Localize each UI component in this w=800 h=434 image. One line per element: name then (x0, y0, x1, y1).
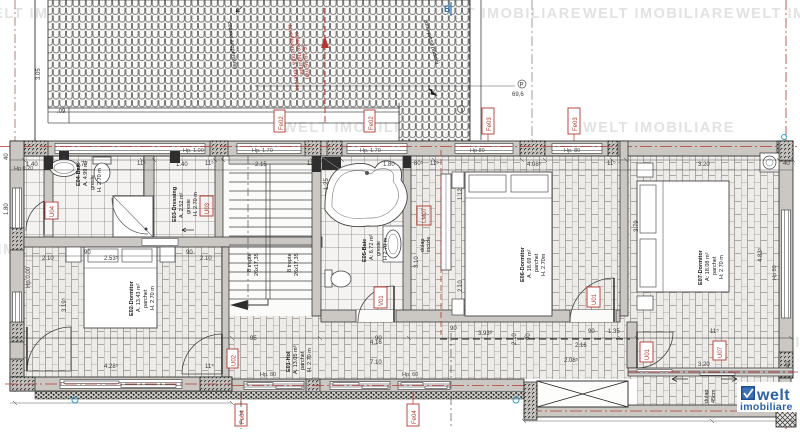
svg-text:90: 90 (588, 329, 595, 335)
svg-text:E02-Dormitor: E02-Dormitor (129, 280, 135, 316)
svg-text:8 trepte: 8 trepte (287, 253, 293, 272)
svg-text:Hp. 1.70: Hp. 1.70 (360, 148, 381, 154)
svg-text:11⁵: 11⁵ (710, 328, 719, 335)
svg-text:Fe02: Fe02 (279, 116, 285, 130)
svg-text:U03: U03 (205, 202, 211, 214)
svg-text:3.19⁵: 3.19⁵ (61, 297, 68, 312)
svg-text:Hp. 1.00: Hp. 1.00 (183, 148, 204, 154)
svg-text:gresie: gresie (186, 199, 192, 214)
svg-text:4.28⁵: 4.28⁵ (104, 363, 119, 370)
svg-text:26x17,35: 26x17,35 (254, 253, 260, 276)
svg-text:3.20: 3.20 (698, 362, 710, 368)
svg-text:1.35: 1.35 (608, 329, 620, 335)
svg-text:40: 40 (783, 161, 790, 167)
svg-text:H. 2.70 m: H. 2.70 m (193, 192, 199, 216)
svg-text:11⁵: 11⁵ (607, 160, 616, 167)
svg-text:Fe02: Fe02 (369, 116, 375, 130)
svg-text:WELT IMOBILIARE: WELT IMOBILIARE (583, 120, 735, 136)
svg-text:parchet: parchet (712, 256, 718, 275)
svg-text:A. 13.05 m²: A. 13.05 m² (293, 345, 299, 374)
svg-text:3.05: 3.05 (36, 68, 42, 80)
svg-text:incizie: incizie (426, 237, 432, 252)
svg-text:H. 2.70 m: H. 2.70 m (150, 286, 156, 310)
svg-text:90: 90 (186, 250, 193, 256)
svg-text:P: P (520, 83, 524, 89)
svg-text:H. 2.70 m: H. 2.70 m (307, 348, 313, 372)
svg-text:1.12: 1.12 (458, 188, 464, 200)
svg-text:H. 2.70m: H. 2.70m (541, 253, 547, 276)
svg-text:45cm: 45cm (711, 389, 717, 403)
svg-text:E03-Dressing: E03-Dressing (172, 187, 178, 222)
svg-text:dulap: dulap (704, 390, 710, 403)
svg-text:E01-Hol: E01-Hol (286, 351, 292, 372)
svg-text:1.80: 1.80 (4, 203, 10, 215)
svg-text:Hp. 80: Hp. 80 (260, 372, 276, 378)
svg-text:imobiliare: imobiliare (740, 401, 793, 413)
svg-text:E07-Dormitor: E07-Dormitor (698, 249, 704, 285)
svg-text:2.10: 2.10 (42, 256, 54, 262)
svg-text:40: 40 (4, 153, 10, 160)
svg-text:parchet: parchet (143, 289, 149, 308)
svg-text:A. 13.43 m²: A. 13.43 m² (136, 283, 142, 312)
svg-text:gresie: gresie (90, 175, 96, 190)
svg-text:LM07: LM07 (422, 207, 428, 223)
svg-text:U07: U07 (718, 346, 724, 358)
svg-text:2.77: 2.77 (76, 162, 88, 168)
svg-text:WELT IMOBILIARE: WELT IMOBILIARE (736, 6, 800, 22)
svg-text:90: 90 (375, 336, 382, 342)
svg-text:Fe03: Fe03 (487, 117, 493, 131)
svg-text:90: 90 (450, 326, 457, 332)
svg-text:69,6: 69,6 (512, 92, 524, 98)
svg-text:A. 18.69 m²: A. 18.69 m² (527, 249, 533, 278)
svg-text:Hp 80: Hp 80 (772, 265, 778, 280)
svg-text:Hp. 80: Hp. 80 (564, 148, 580, 154)
svg-text:8 trepte: 8 trepte (247, 253, 253, 272)
svg-text:3.93⁸: 3.93⁸ (478, 330, 493, 337)
svg-text:WELT IMOBILIARE: WELT IMOBILIARE (583, 6, 735, 22)
svg-text:A: 18.08 m²: A: 18.08 m² (705, 252, 711, 281)
svg-text:2.10: 2.10 (200, 256, 212, 262)
svg-text:E05-Baie: E05-Baie (362, 239, 368, 262)
svg-text:1.40: 1.40 (176, 162, 188, 168)
svg-text:Hp. 60: Hp. 60 (402, 372, 418, 378)
svg-text:11⁴: 11⁴ (205, 363, 214, 370)
svg-text:3.79: 3.79 (634, 220, 640, 232)
svg-text:Hp.0.00: Hp.0.00 (26, 266, 32, 288)
svg-text:E06-Dormitor: E06-Dormitor (520, 246, 526, 282)
svg-text:80⁵: 80⁵ (414, 160, 424, 167)
svg-text:Hp 80: Hp 80 (470, 148, 485, 154)
svg-text:4.83⁵: 4.83⁵ (757, 247, 764, 262)
svg-text:2.10: 2.10 (458, 280, 464, 292)
svg-text:1.40: 1.40 (26, 162, 38, 168)
svg-text:.09: .09 (57, 109, 66, 115)
svg-text:1.80: 1.80 (383, 162, 395, 168)
svg-text:U01: U01 (645, 348, 651, 360)
svg-text:7.10: 7.10 (370, 360, 382, 366)
svg-text:40: 40 (786, 361, 792, 368)
svg-text:H. 2.70 m: H. 2.70 m (97, 168, 103, 192)
svg-text:parchet: parchet (534, 253, 540, 272)
svg-text:90: 90 (526, 333, 532, 340)
svg-text:95: 95 (250, 336, 257, 342)
svg-text:U01: U01 (592, 293, 598, 305)
svg-text:90: 90 (84, 250, 91, 256)
svg-text:A. 2.52 m²: A. 2.52 m² (179, 192, 185, 218)
svg-text:26x17,35: 26x17,35 (294, 253, 300, 276)
svg-text:2.08⁵: 2.08⁵ (564, 357, 579, 364)
svg-text:parchet: parchet (300, 351, 306, 370)
svg-text:U02: U02 (232, 354, 238, 366)
svg-text:A: 6.72 m²: A: 6.72 m² (369, 234, 375, 260)
svg-text:1.25: 1.25 (324, 178, 330, 190)
svg-text:2.16: 2.16 (575, 343, 587, 349)
svg-text:11⁵: 11⁵ (430, 160, 439, 167)
svg-text:11⁵: 11⁵ (137, 160, 146, 167)
svg-text:Fe04: Fe04 (412, 410, 418, 424)
svg-text:Fe03: Fe03 (573, 117, 579, 131)
svg-text:11⁵: 11⁵ (307, 160, 316, 167)
svg-text:4.08⁵: 4.08⁵ (527, 161, 542, 168)
svg-text:V01: V01 (379, 295, 385, 306)
svg-text:3.10: 3.10 (414, 256, 420, 268)
svg-text:2.10: 2.10 (512, 333, 518, 345)
svg-text:Hp. 1.70: Hp. 1.70 (252, 148, 273, 154)
svg-text:U04: U04 (50, 205, 56, 217)
svg-text:B: B (444, 4, 451, 14)
svg-text:3.20: 3.20 (698, 162, 710, 168)
svg-text:2.15: 2.15 (255, 162, 267, 168)
svg-text:gresie: gresie (376, 241, 382, 256)
svg-text:11⁵: 11⁵ (205, 160, 214, 167)
svg-text:H 2.70 m: H 2.70 m (383, 237, 389, 260)
svg-text:H: 2.70 m: H: 2.70 m (719, 255, 725, 279)
svg-text:2.53⁵: 2.53⁵ (104, 255, 119, 262)
